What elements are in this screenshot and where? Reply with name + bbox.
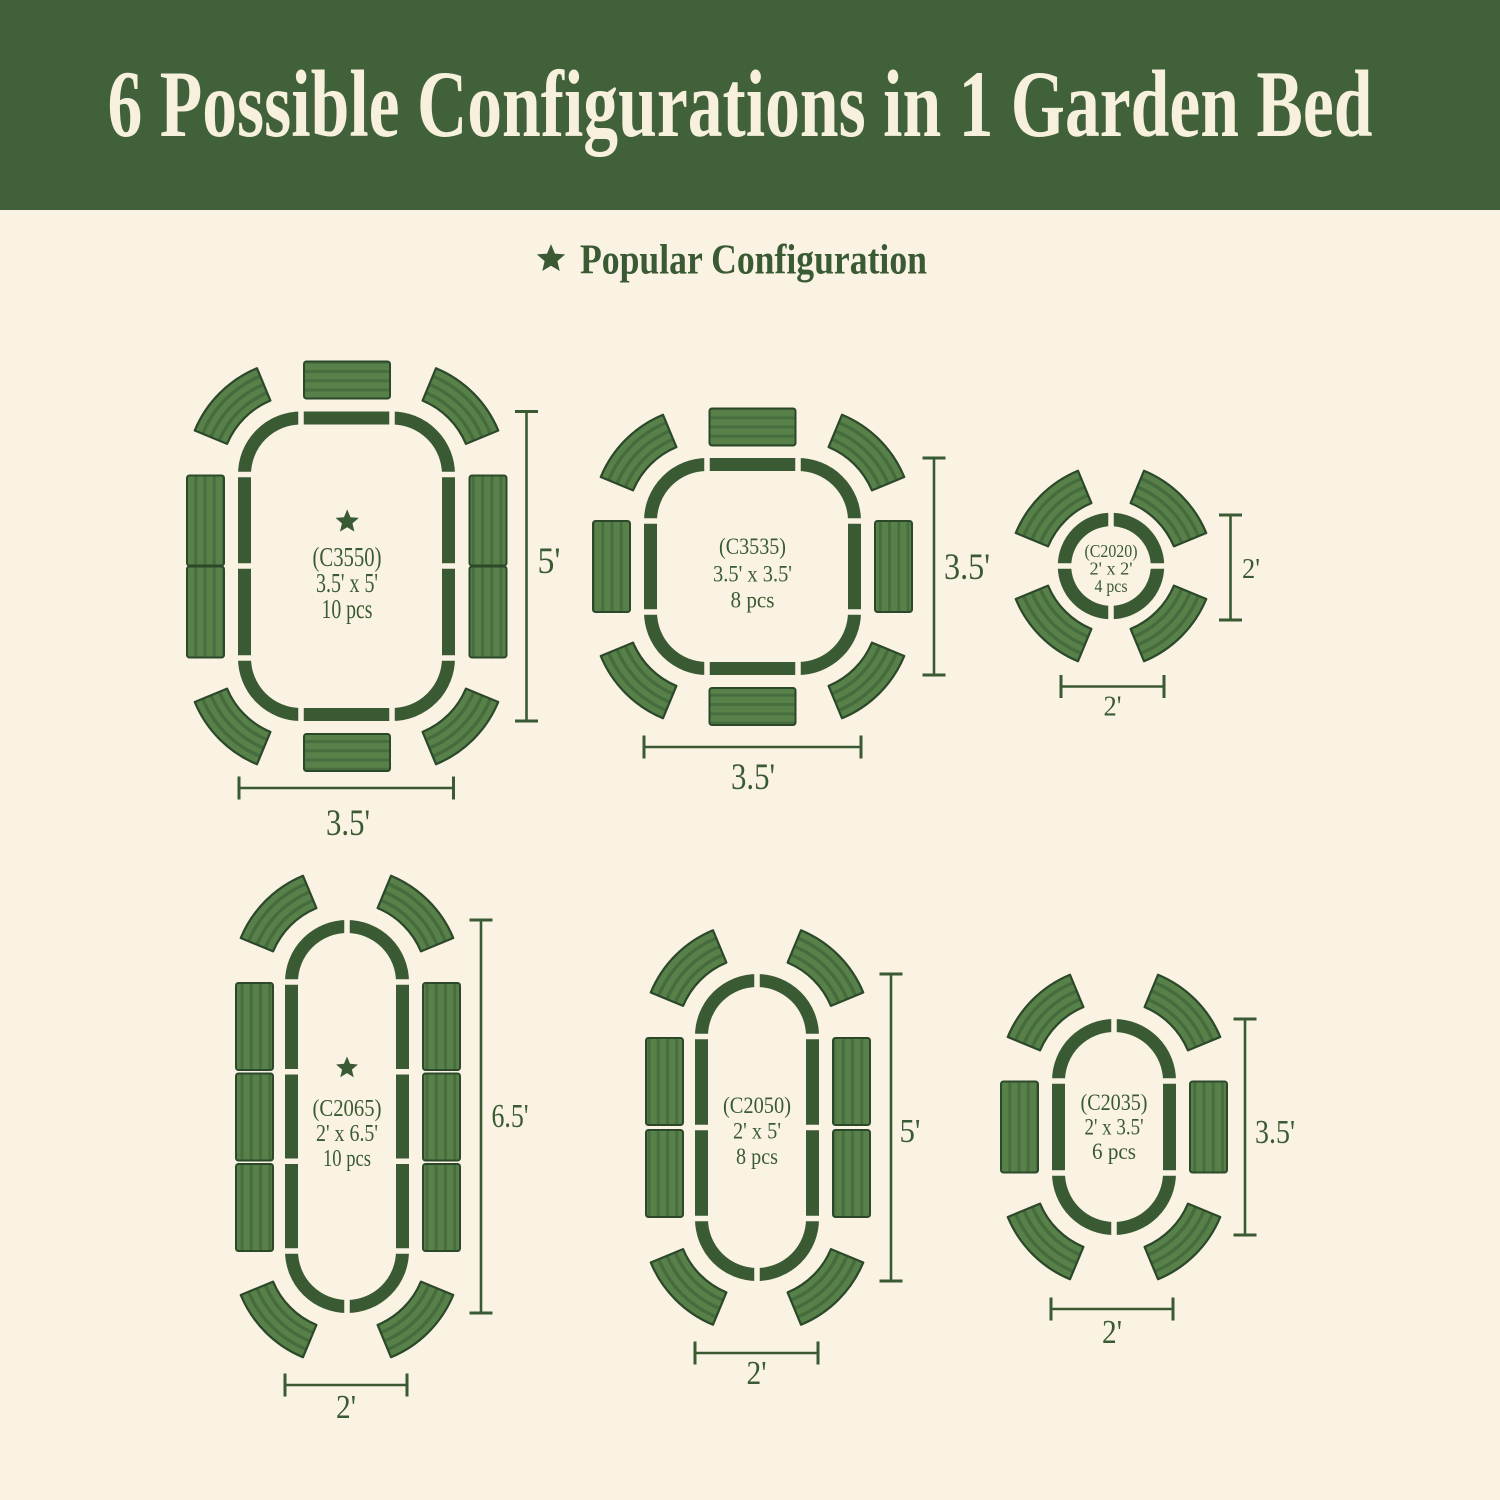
svg-text:8 pcs: 8 pcs bbox=[731, 588, 775, 613]
svg-text:5': 5' bbox=[900, 1113, 921, 1150]
svg-text:2' x 5': 2' x 5' bbox=[733, 1119, 781, 1144]
svg-text:2': 2' bbox=[1104, 691, 1122, 723]
svg-text:2': 2' bbox=[336, 1389, 356, 1426]
svg-text:3.5' x 3.5': 3.5' x 3.5' bbox=[713, 562, 792, 587]
svg-text:6.5': 6.5' bbox=[492, 1098, 529, 1135]
svg-text:2' x 6.5': 2' x 6.5' bbox=[316, 1121, 378, 1147]
svg-text:6 Possible Configurations in 1: 6 Possible Configurations in 1 Garden Be… bbox=[108, 51, 1373, 157]
svg-text:(C2050): (C2050) bbox=[723, 1093, 791, 1118]
svg-text:3.5': 3.5' bbox=[1255, 1114, 1295, 1151]
svg-text:(C3535): (C3535) bbox=[719, 534, 786, 559]
svg-text:2': 2' bbox=[1242, 553, 1260, 585]
svg-text:Popular Configuration: Popular Configuration bbox=[580, 237, 927, 284]
svg-text:3.5': 3.5' bbox=[731, 757, 775, 798]
svg-text:8 pcs: 8 pcs bbox=[736, 1144, 778, 1169]
svg-text:6 pcs: 6 pcs bbox=[1092, 1139, 1136, 1164]
svg-text:3.5': 3.5' bbox=[326, 803, 370, 844]
svg-text:2': 2' bbox=[1102, 1314, 1122, 1351]
svg-text:2': 2' bbox=[747, 1355, 767, 1392]
svg-text:3.5': 3.5' bbox=[944, 547, 990, 588]
svg-text:10 pcs: 10 pcs bbox=[323, 1146, 371, 1172]
svg-text:4 pcs: 4 pcs bbox=[1095, 576, 1128, 596]
svg-text:(C2065): (C2065) bbox=[313, 1096, 382, 1122]
svg-text:10 pcs: 10 pcs bbox=[322, 594, 373, 624]
svg-text:2' x 3.5': 2' x 3.5' bbox=[1085, 1115, 1144, 1140]
svg-text:(C2035): (C2035) bbox=[1081, 1090, 1148, 1115]
svg-text:5': 5' bbox=[538, 541, 561, 582]
